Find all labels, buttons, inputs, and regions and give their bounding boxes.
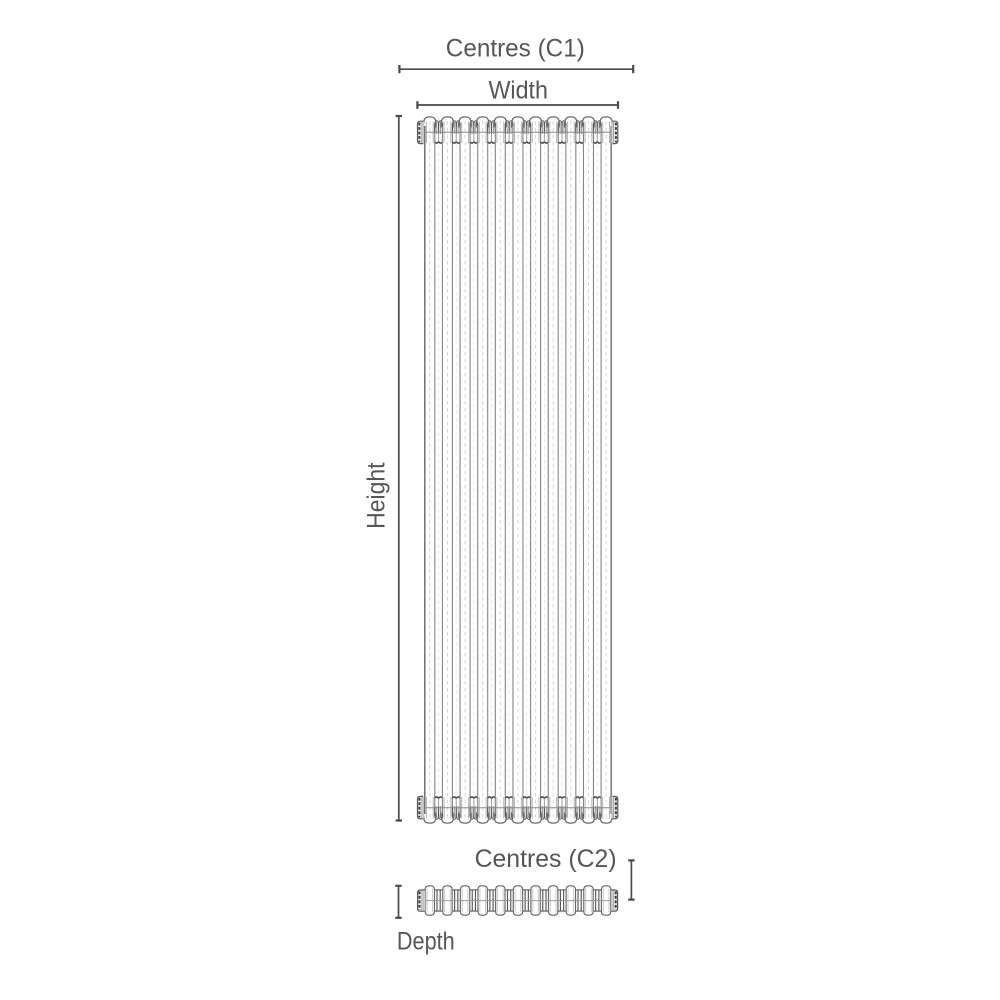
svg-text:Centres (C1): Centres (C1) <box>446 34 585 62</box>
svg-text:Width: Width <box>488 77 548 105</box>
svg-text:Centres (C2): Centres (C2) <box>475 845 617 873</box>
svg-text:Depth: Depth <box>397 928 455 956</box>
svg-text:Height: Height <box>363 462 391 528</box>
